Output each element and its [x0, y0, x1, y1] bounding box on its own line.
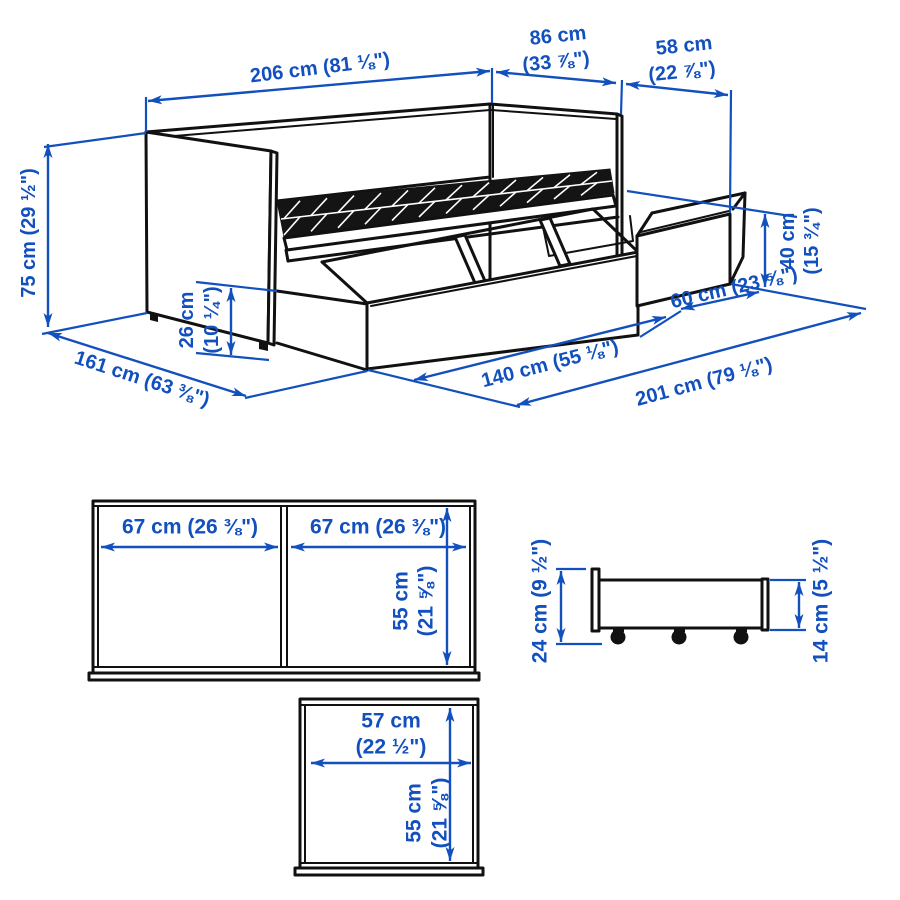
dimension-diagram-page: 206 cm (81 ⅛") 86 cm (33 ⅞") 58 cm (22 ⅞…	[0, 0, 900, 900]
drawer-side-view: 24 cm (9 ½") 14 cm (5 ½")	[529, 539, 833, 663]
casters	[611, 627, 749, 645]
dim-line-86	[496, 72, 616, 83]
dim-label-total-length: 201 cm (79 ⅛")	[633, 353, 775, 411]
dim-label-body-height: 14 cm (5 ½")	[810, 539, 833, 663]
drawer-front-panel	[592, 569, 599, 631]
dim-label-top-depth-1: 55 cm	[403, 783, 426, 843]
dim-label-drawer-height-2: (15 ¾")	[801, 207, 823, 274]
dim-label-depth-top-1: 86 cm	[529, 22, 588, 50]
dim-label-drawer-ext-1: 58 cm	[655, 32, 714, 60]
dim-label-height: 75 cm (29 ½")	[18, 168, 40, 298]
daybed-perspective-view: 206 cm (81 ⅛") 86 cm (33 ⅞") 58 cm (22 ⅞…	[18, 22, 866, 411]
dim-label-total-height: 24 cm (9 ½")	[529, 539, 552, 663]
drawer-back-edge	[762, 579, 768, 630]
drawer-divider	[455, 235, 485, 283]
drawer-top-view: 57 cm (22 ½") 55 cm (21 ⅝")	[295, 699, 483, 875]
dim-label-clearance-2: (10 ¼")	[201, 286, 223, 353]
dim-label-depth-top-2: (33 ⅞")	[521, 48, 590, 77]
dim-label-clearance-1: 26 cm	[176, 292, 198, 349]
dim-label-top-depth-2: (21 ⅝")	[429, 778, 452, 849]
dim-label-front-height-1: 55 cm	[390, 571, 413, 631]
dim-label-right-bay: 67 cm (26 ⅜")	[310, 516, 446, 539]
frame-front-view: 67 cm (26 ⅜") 67 cm (26 ⅜") 55 cm (21 ⅝"…	[89, 501, 479, 680]
daybed-dimension-diagram: 206 cm (81 ⅛") 86 cm (33 ⅞") 58 cm (22 ⅞…	[0, 0, 900, 900]
front-view-plinth	[89, 673, 479, 680]
dim-line-58	[626, 84, 728, 95]
drawer-body	[598, 580, 763, 628]
dim-label-front-height-2: (21 ⅝")	[415, 566, 438, 637]
dim-label-top-width-1: 57 cm	[361, 710, 421, 733]
dim-label-left-bay: 67 cm (26 ⅜")	[122, 516, 258, 539]
top-view-plinth	[295, 868, 483, 875]
dim-label-drawer-height-1: 40 cm	[777, 213, 799, 270]
dim-label-drawer-ext-2: (22 ⅞")	[647, 58, 716, 87]
dim-label-top-width-2: (22 ½")	[356, 736, 427, 759]
